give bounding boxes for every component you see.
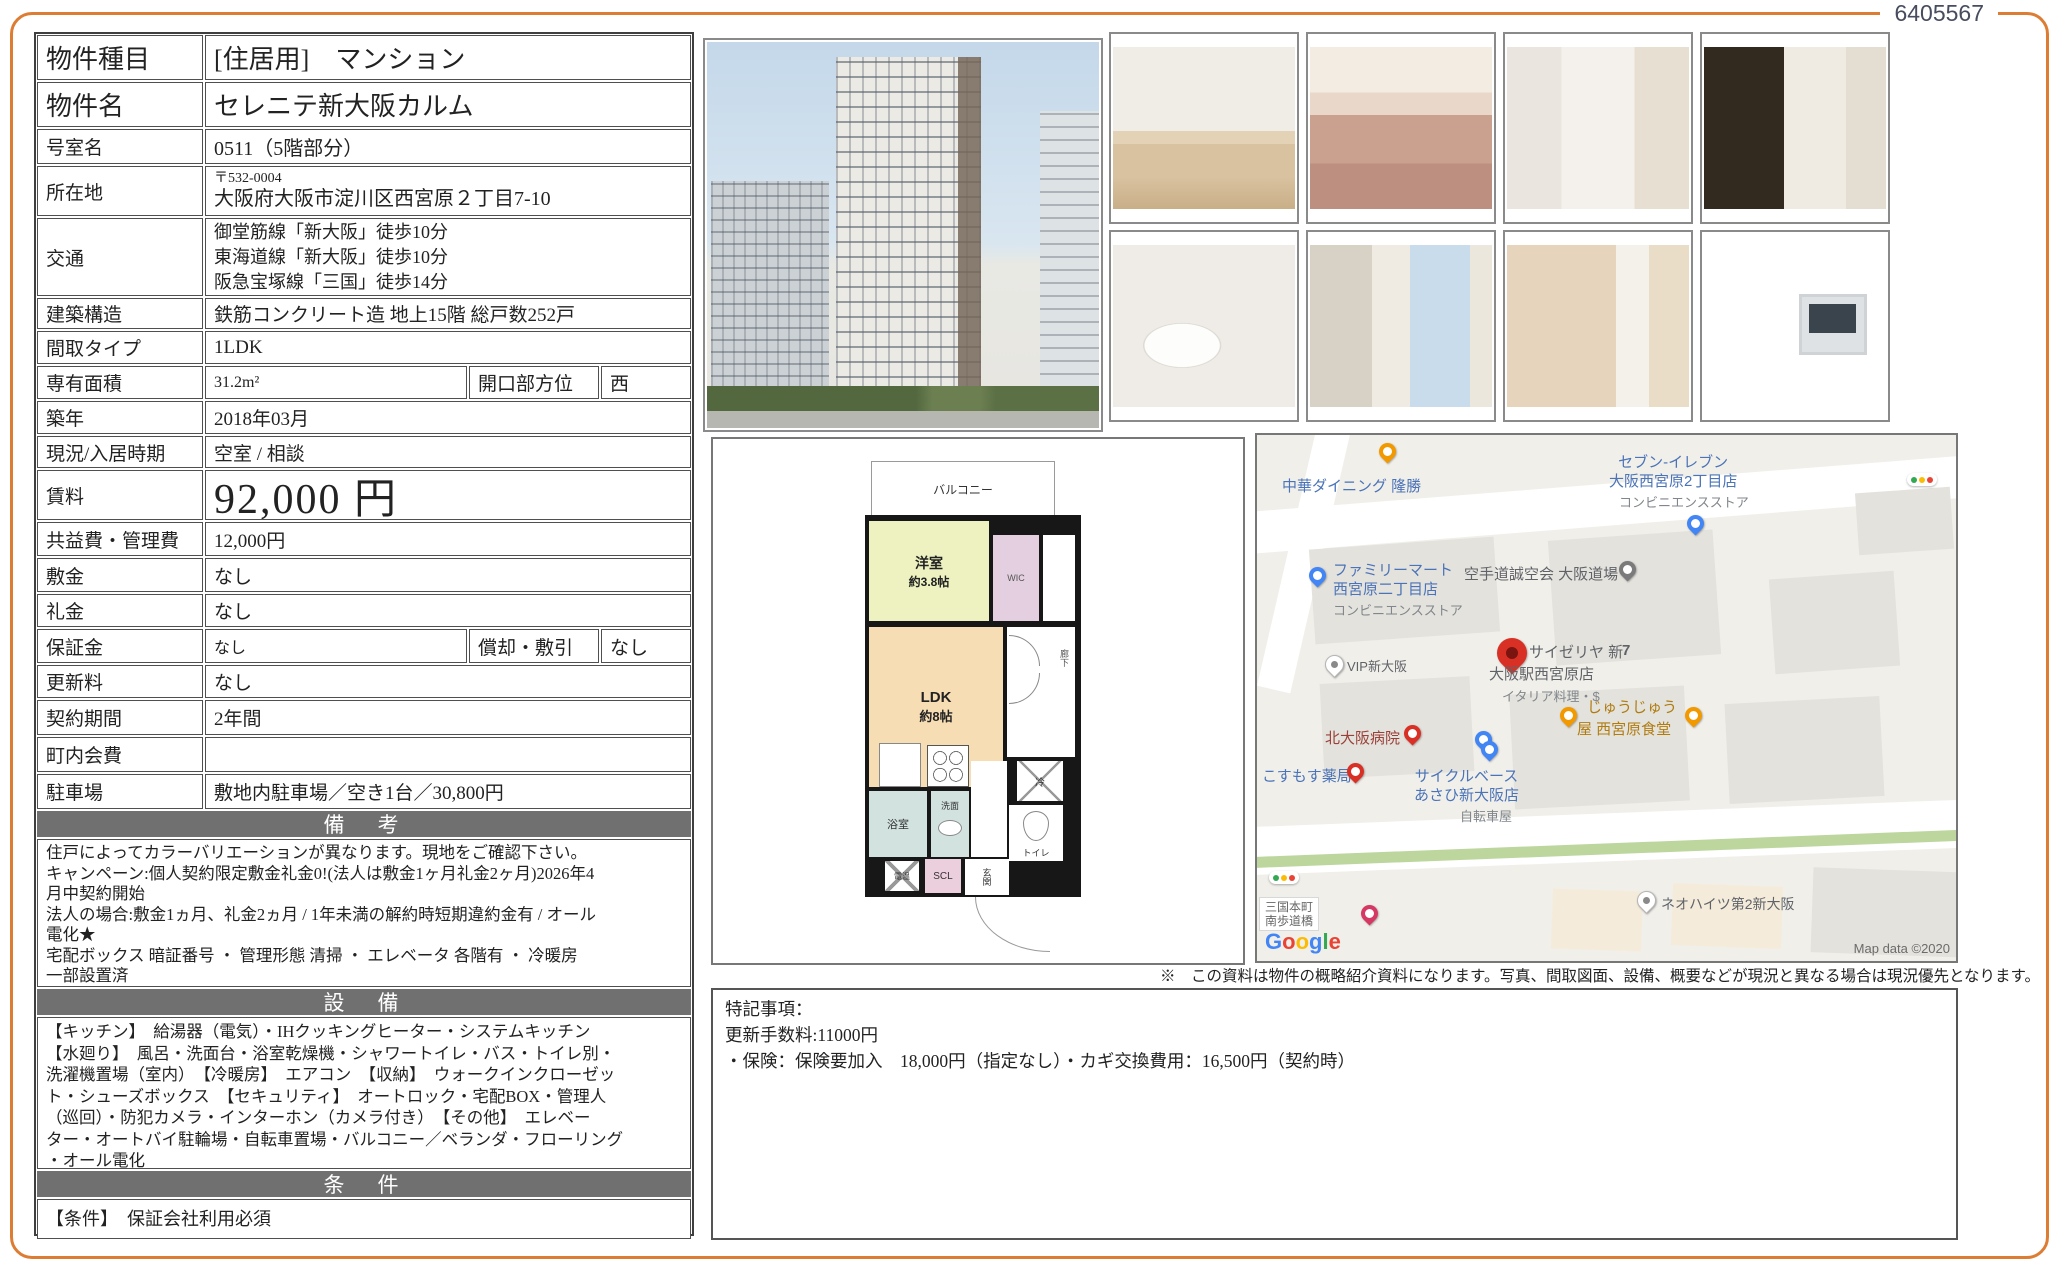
setsubi-line: 洗濯機置場（室内） 【冷暖房】 エアコン 【収納】 ウォークインクローゼッ [46,1064,682,1086]
setsubi-line: 【キッチン】 給湯器（電気）・IHクッキングヒーター・システムキッチン [46,1021,682,1043]
room-size: 約3.8帖 [909,573,950,590]
map-label-karate: 空手道誠空会 大阪道場 [1464,565,1618,584]
map-label-chuka: 中華ダイニング 隆勝 [1282,477,1421,496]
floorplan-shoes-closet: SCL [925,859,961,893]
restaurant-pin [1375,439,1399,463]
map-label-neo: ネオハイツ第2新大阪 [1661,895,1795,914]
row-value: 〒532-0004 大阪府大阪市淀川区西宮原２丁目7-10 [205,166,691,216]
map-label-building7: 7 [1622,641,1630,660]
map-label-bridge: 三国本町 南歩道橋 [1259,897,1319,931]
row-label: 間取タイプ [37,331,203,364]
table-row: 交通 御堂筋線「新大阪」徒歩10分 東海道線「新大阪」徒歩10分 阪急宝塚線「三… [37,218,691,296]
floorplan-toilet: トイレ [1009,805,1063,861]
street-road [707,411,1099,428]
transport-line: 御堂筋線「新大阪」徒歩10分 [214,220,448,245]
fridge-label: 冷 [1035,774,1045,789]
row-label: 駐車場 [37,774,203,809]
photo-building-exterior [703,38,1103,432]
main-tower [836,57,981,393]
map-label-hospital: 北大阪病院 [1325,729,1400,748]
map-road-main [1255,798,1958,875]
row-label-2: 償却・敷引 [469,629,599,663]
map-label-saizeriya2: 大阪駅西宮原店 [1489,665,1594,684]
floorplan-pipe-space [1043,535,1075,621]
row-value: 12,000円 [205,522,691,556]
intercom-screen [1809,304,1856,333]
adjacent-building-left [711,181,829,401]
row-value: なし [205,665,691,698]
traffic-light-icon [1907,473,1937,486]
row-label: 物件種目 [37,35,203,80]
map-label-famima: ファミリーマート 西宮原二丁目店 [1333,561,1453,599]
table-row: 現況/入居時期 空室 / 相談 [37,436,691,468]
row-label: 所在地 [37,166,203,216]
property-flyer-page: 6405567 物件種目 [住居用] マンション 物件名 セレニテ新大阪カルム … [0,0,2056,1265]
row-value: 敷地内駐車場／空き1台／30,800円 [205,774,691,809]
row-value: 2年間 [205,700,691,735]
photo-kitchen [1306,32,1496,224]
special-notes-box: 特記事項： 更新手数料:11000円 ・保険：保険要加入 18,000円（指定な… [711,988,1958,1240]
row-value: なし [205,629,467,663]
table-row: 所在地 〒532-0004 大阪府大阪市淀川区西宮原２丁目7-10 [37,166,691,216]
traffic-light-icon [1269,871,1299,884]
row-label: 町内会費 [37,737,203,772]
floorplan-entry-corridor [971,761,1007,857]
disclaimer-text: ※ この資料は物件の概略紹介資料になります。写真、間取図面、設備、概要などが現況… [700,964,2040,986]
floorplan-wic: WIC [993,535,1039,621]
room-label: 洋室 [915,553,943,573]
transport-line: 阪急宝塚線「三国」徒歩14分 [214,270,448,295]
photo-washroom-corridor [1503,32,1693,224]
floorplan-fridge: 冷 [1017,761,1063,801]
tower-corner [958,57,981,393]
floorplan-hall: 廊下 [1007,627,1075,757]
row-value: 2018年03月 [205,401,691,434]
photo-bedroom [1306,230,1496,422]
floorplan-counter [879,743,921,787]
scl-label: SCL [933,871,952,882]
map-label-seven: セブン-イレブン 大阪西宮原2丁目店 [1609,453,1737,491]
row-value: セレニテ新大阪カルム [205,82,691,127]
table-row: 物件種目 [住居用] マンション [37,35,691,80]
bath-label: 浴室 [887,816,909,832]
row-label: 更新料 [37,665,203,698]
notes-line: ・保険：保険要加入 18,000円（指定なし）・カギ交換費用：16,500円（契… [725,1048,1944,1074]
wash-label: 洗面 [941,799,959,812]
row-value-2: なし [601,629,691,663]
map-label-cycle-sub: 自転車屋 [1460,807,1512,826]
building-photo-image [707,42,1099,428]
toilet-bowl-icon [1023,811,1049,841]
biko-line: 宅配ボックス 暗証番号 ・ 管理形態 清掃 ・ エレベータ 各階有 ・ 冷暖房 [46,946,682,967]
row-label-2: 開口部方位 [469,366,599,399]
floorplan-body: 洋室 約3.8帖 WIC LDK 約8帖 廊下 [865,515,1081,897]
biko-line: 一部設置済 [46,966,682,987]
ldk-size: 約8帖 [919,706,952,725]
section-header-biko: 備 考 [37,811,691,837]
row-label: 保証金 [37,629,203,663]
row-label: 交通 [37,218,203,296]
table-row: 建築構造 鉄筋コンクリート造 地上15階 総戸数252戸 [37,298,691,329]
row-value: 31.2m² [205,366,467,399]
photo-intercom-monitor [1700,230,1890,422]
floorplan-entrance: 玄関 [965,859,1009,895]
street-trees [707,386,1099,413]
table-row: 間取タイプ 1LDK [37,331,691,364]
notes-line: 更新手数料:11000円 [725,1022,1944,1048]
heater-label: 電温 [894,871,910,882]
row-label: 礼金 [37,594,203,627]
table-row: 築年 2018年03月 [37,401,691,434]
map-green-strip [1255,828,1958,868]
row-label: 専有面積 [37,366,203,399]
hotel-pin [1357,901,1381,925]
section-joken-text: 【条件】 保証会社利用必須 [37,1199,691,1239]
transport-line: 東海道線「新大阪」徒歩10分 [214,245,448,270]
row-value: [住居用] マンション [205,35,691,80]
door-arc [1009,673,1040,704]
floorplan: バルコニー 洋室 約3.8帖 WIC LDK 約8帖 廊下 [863,461,1085,953]
map-label-kosumosu: こすもす薬局 [1262,767,1352,786]
intercom-panel [1799,294,1867,355]
map-label-vip: VIP新大阪 [1347,657,1407,676]
biko-line: キャンペーン:個人契約限定敷金礼金0!(法人は敷金1ヶ月礼金2ヶ月)2026年4 [46,864,682,885]
map-label-jujuya2: 屋 西宮原食堂 [1577,720,1671,739]
floorplan-water-heater: 電温 [885,861,919,891]
table-row: 敷金 なし [37,558,691,592]
row-value: 御堂筋線「新大阪」徒歩10分 東海道線「新大阪」徒歩10分 阪急宝塚線「三国」徒… [205,218,691,296]
row-label: 物件名 [37,82,203,127]
photo-bathroom [1700,32,1890,224]
table-row: 保証金 なし 償却・敷引 なし [37,629,691,663]
adjacent-building-right [1040,111,1099,401]
row-value: なし [205,594,691,627]
joken-line: 【条件】 保証会社利用必須 [46,1209,271,1230]
map-label-seven-sub: コンビニエンスストア [1619,493,1749,512]
entrance-label: 玄関 [981,868,994,886]
map-label-cycle: サイクルベース あさひ新大阪店 [1414,767,1519,805]
setsubi-line: 【水廻り】 風呂・洗面台・浴室乾燥機・シャワートイレ・バス・トイレ別・ [46,1043,682,1065]
table-row-rent: 賃料 92,000 円 [37,470,691,520]
notes-line: 特記事項： [725,996,1944,1022]
hall-label: 廊下 [1058,649,1071,667]
map-credit: Map data ©2020 [1854,941,1950,956]
biko-line: 電化★ [46,925,682,946]
balcony-label: バルコニー [933,481,993,498]
map-label-saizeriya: サイゼリヤ 新 [1529,643,1623,662]
door-arc [1009,635,1040,666]
section-header-setsubi: 設 備 [37,989,691,1015]
row-label: 現況/入居時期 [37,436,203,468]
toilet-label: トイレ [1022,846,1049,859]
floorplan-stove-icon [927,745,969,787]
row-label: 賃料 [37,470,203,520]
table-row: 更新料 なし [37,665,691,698]
map-label-saizeriya-sub: イタリア料理・$ [1502,687,1600,706]
table-row: 共益費・管理費 12,000円 [37,522,691,556]
row-value: 0511（5階部分） [205,129,691,164]
table-row: 契約期間 2年間 [37,700,691,735]
row-label: 築年 [37,401,203,434]
biko-line: 法人の場合:敷金1ヵ月、礼金2ヵ月 / 1年未満の解約時短期違約金有 / オール [46,905,682,926]
row-value: 鉄筋コンクリート造 地上15階 総戸数252戸 [205,298,691,329]
biko-line: 月中契約開始 [46,884,682,905]
row-value [205,737,691,772]
table-row: 町内会費 [37,737,691,772]
table-row: 号室名 0511（5階部分） [37,129,691,164]
floorplan-balcony: バルコニー [871,461,1055,517]
section-biko-text: 住戸によってカラーバリエーションが異なります。現地をご確認下さい。 キャンペーン… [37,839,691,987]
table-row: 礼金 なし [37,594,691,627]
row-label: 敷金 [37,558,203,592]
location-map: 中華ダイニング 隆勝 セブン-イレブン 大阪西宮原2丁目店 コンビニエンスストア… [1255,433,1958,963]
section-header-joken: 条 件 [37,1171,691,1197]
row-value-2: 西 [601,366,691,399]
photo-walk-in-closet [1503,230,1693,422]
sink-icon [938,820,962,836]
map-label-famima-sub: コンビニエンスストア [1333,601,1463,620]
place-pin [1321,651,1348,678]
wic-label: WIC [1007,573,1025,583]
floorplan-bath: 浴室 [869,791,927,857]
floorplan-western-room: 洋室 約3.8帖 [869,521,989,621]
floorplan-washroom: 洗面 [931,791,969,857]
photo-toilet [1109,230,1299,422]
document-number: 6405567 [1880,0,1998,26]
rent-value: 92,000 円 [205,470,691,520]
property-table: 物件種目 [住居用] マンション 物件名 セレニテ新大阪カルム 号室名 0511… [34,32,694,1236]
table-row: 駐車場 敷地内駐車場／空き1台／30,800円 [37,774,691,809]
floorplan-box: バルコニー 洋室 約3.8帖 WIC LDK 約8帖 廊下 [711,437,1245,965]
postal-code: 〒532-0004 [214,171,282,187]
setsubi-line: ター・オートバイ駐輪場・自転車置場・バルコニー／ベランダ・フローリング [46,1129,682,1151]
row-value: 空室 / 相談 [205,436,691,468]
table-row: 専有面積 31.2m² 開口部方位 西 [37,366,691,399]
row-label: 建築構造 [37,298,203,329]
biko-line: 住戸によってカラーバリエーションが異なります。現地をご確認下さい。 [46,843,682,864]
row-label: 共益費・管理費 [37,522,203,556]
setsubi-line: （巡回）・防犯カメラ・インターホン（カメラ付き） 【その他】 エレベー [46,1107,682,1129]
google-logo: Google [1265,929,1341,955]
row-label: 号室名 [37,129,203,164]
section-setsubi-text: 【キッチン】 給湯器（電気）・IHクッキングヒーター・システムキッチン 【水廻り… [37,1017,691,1169]
ldk-label: LDK [921,689,952,706]
row-label: 契約期間 [37,700,203,735]
photo-living-room [1109,32,1299,224]
map-label-jujuya1: じゅうじゅう [1587,698,1677,717]
entrance-door-arc [975,897,1050,952]
address-line: 大阪府大阪市淀川区西宮原２丁目7-10 [214,188,551,211]
table-row: 物件名 セレニテ新大阪カルム [37,82,691,127]
row-value: なし [205,558,691,592]
row-value: 1LDK [205,331,691,364]
setsubi-line: ト・シューズボックス 【セキュリティ】 オートロック・宅配BOX・管理人 [46,1086,682,1108]
